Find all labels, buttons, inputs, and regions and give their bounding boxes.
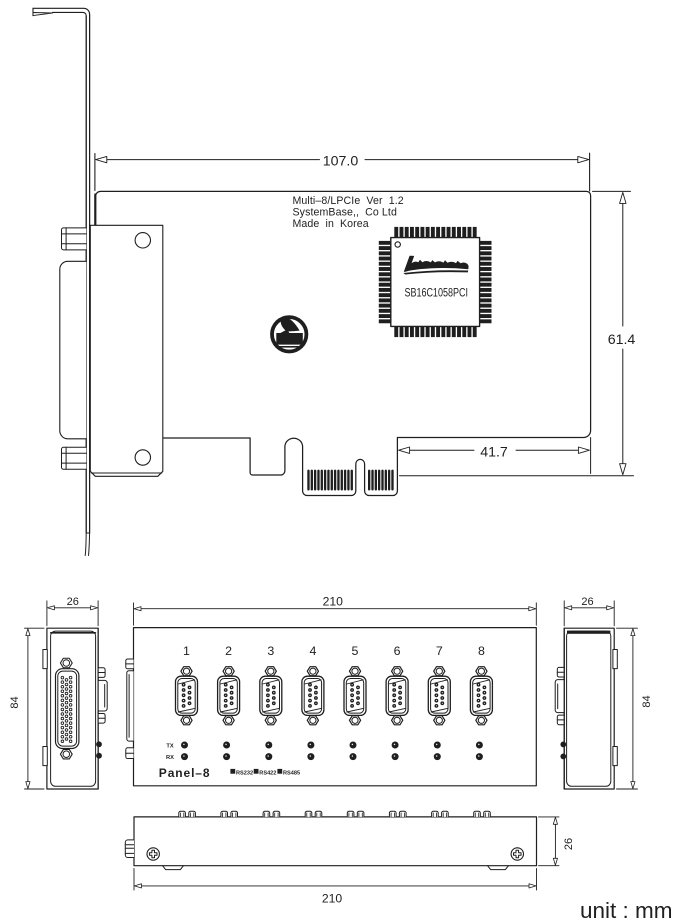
svg-text:RS232: RS232 bbox=[236, 771, 253, 777]
svg-text:SystemBase,, Co Ltd: SystemBase,, Co Ltd bbox=[293, 206, 397, 218]
svg-text:4: 4 bbox=[309, 644, 316, 658]
svg-text:6: 6 bbox=[394, 644, 401, 658]
svg-text:210: 210 bbox=[323, 595, 344, 609]
svg-text:RX: RX bbox=[166, 755, 174, 761]
svg-text:1: 1 bbox=[183, 644, 190, 658]
svg-text:84: 84 bbox=[9, 696, 21, 708]
svg-text:26: 26 bbox=[563, 838, 575, 850]
svg-text:RS485: RS485 bbox=[283, 771, 300, 777]
svg-text:Multi–8/LPCIe Ver 1.2: Multi–8/LPCIe Ver 1.2 bbox=[293, 195, 404, 207]
svg-text:26: 26 bbox=[581, 596, 593, 608]
svg-text:TX: TX bbox=[166, 743, 173, 749]
svg-text:210: 210 bbox=[322, 892, 343, 906]
svg-text:2: 2 bbox=[225, 644, 232, 658]
svg-text:107.0: 107.0 bbox=[323, 153, 359, 169]
svg-text:8: 8 bbox=[478, 644, 485, 658]
svg-text:84: 84 bbox=[641, 695, 653, 707]
svg-text:26: 26 bbox=[67, 596, 79, 608]
svg-text:61.4: 61.4 bbox=[608, 332, 636, 348]
svg-text:RS422: RS422 bbox=[259, 771, 276, 777]
svg-text:SB16C1058PCI: SB16C1058PCI bbox=[404, 285, 468, 299]
svg-text:7: 7 bbox=[436, 644, 443, 658]
svg-text:41.7: 41.7 bbox=[480, 444, 508, 460]
svg-text:Made in Korea: Made in Korea bbox=[293, 218, 369, 230]
svg-text:Panel–8: Panel–8 bbox=[159, 766, 211, 780]
svg-text:5: 5 bbox=[352, 644, 359, 658]
svg-text:3: 3 bbox=[267, 644, 274, 658]
svg-text:unit : mm: unit : mm bbox=[580, 898, 673, 923]
